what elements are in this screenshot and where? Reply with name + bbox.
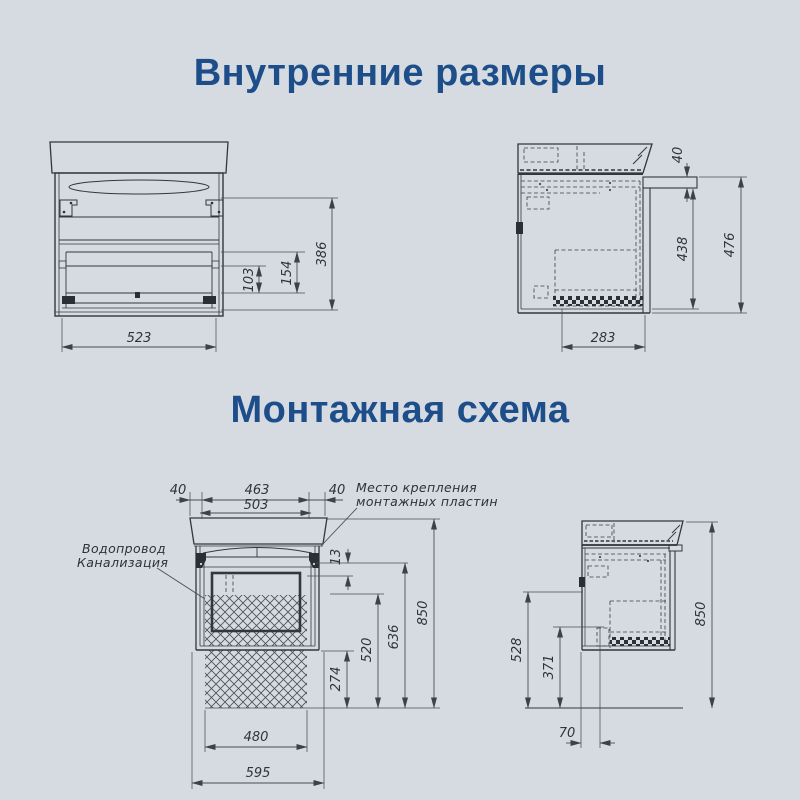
label-mounting-plates-line2: монтажных пластин	[356, 494, 498, 509]
hidden-interior-lines	[516, 181, 643, 307]
dim-154: 154	[280, 261, 295, 286]
dim-371: 371	[542, 655, 557, 680]
hidden-interior-lines-side	[579, 554, 670, 648]
mounting-plate-left	[196, 553, 206, 568]
label-plumbing-line2: Канализация	[77, 555, 168, 570]
dim-636: 636	[387, 625, 402, 650]
mounting-side-view-drawing: 850 528 371 70	[500, 490, 800, 800]
dim-70: 70	[559, 726, 576, 741]
dim-40-right: 40	[329, 483, 346, 498]
dim-528: 528	[510, 638, 525, 663]
leader-plumbing	[157, 568, 205, 599]
drawer-details	[59, 252, 219, 308]
dim-850-side: 850	[694, 602, 709, 627]
annotations: Место крепления монтажных пластин Водопр…	[77, 480, 498, 599]
dim-40: 40	[671, 147, 686, 164]
dim-520: 520	[360, 638, 375, 663]
dim-463: 463	[245, 483, 270, 498]
leader-mounting-plates	[321, 508, 357, 546]
label-mounting-plates-line1: Место крепления	[356, 480, 477, 495]
dim-523: 523	[127, 331, 152, 346]
vanity-front-outline	[50, 142, 228, 316]
dim-13: 13	[329, 549, 344, 566]
mounting-front-view-drawing: 40 463 40 503 13 274 520 636 850 480 595…	[60, 470, 480, 800]
hanging-brackets	[60, 200, 223, 216]
dim-480: 480	[244, 730, 269, 745]
dim-503: 503	[244, 498, 269, 513]
dim-274: 274	[329, 667, 344, 692]
label-plumbing-line1: Водопровод	[82, 541, 166, 556]
dim-476: 476	[723, 233, 738, 258]
front-dimensions: 386 154 103 523	[62, 198, 338, 352]
internal-side-view-drawing: 40 438 476 283	[480, 130, 800, 370]
dim-103: 103	[242, 268, 257, 293]
dim-595: 595	[246, 766, 271, 781]
dim-386: 386	[315, 242, 330, 267]
wall-niche-hatch	[205, 595, 307, 708]
internal-front-view-drawing: 386 154 103 523	[30, 130, 360, 370]
title-internal-dimensions: Внутренние размеры	[0, 52, 800, 95]
dim-283: 283	[591, 331, 616, 346]
dim-40-left: 40	[170, 483, 187, 498]
dim-438: 438	[676, 237, 691, 262]
vanity-side-outline	[518, 144, 697, 313]
vanity-mount-side-outline	[582, 521, 683, 650]
mount-side-dimensions: 850 528 371 70	[510, 522, 718, 748]
infographic-page: { "colors": {"background": "#d5dbe1", "t…	[0, 0, 800, 800]
mounting-plate-right	[309, 553, 319, 568]
title-mounting-scheme: Монтажная схема	[0, 389, 800, 432]
dim-850-front: 850	[416, 601, 431, 626]
